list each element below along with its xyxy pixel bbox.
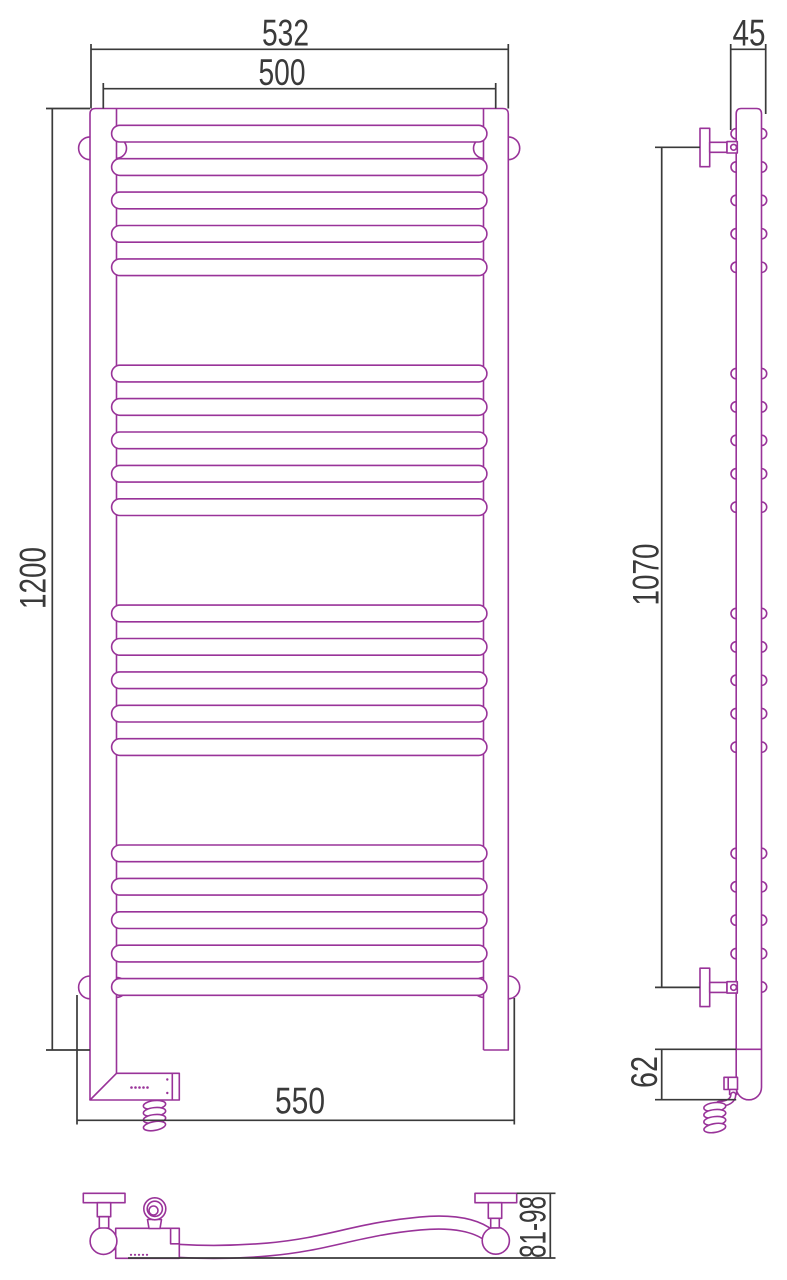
- dim-label-550: 550: [275, 1081, 325, 1122]
- power-cable-coil: [143, 1099, 167, 1132]
- dim-label-62: 62: [624, 1056, 665, 1088]
- dim-label-1070: 1070: [626, 544, 667, 606]
- top-post-right: [482, 1227, 509, 1254]
- bracket-arc-top-right-outer: [508, 137, 519, 160]
- top-view: 81-98: [83, 1193, 555, 1258]
- dim-label-532: 532: [262, 13, 309, 54]
- bracket-flange: [475, 1193, 517, 1202]
- bracket-arc-top-left-outer: [79, 137, 90, 160]
- rung: [112, 639, 487, 656]
- rung: [112, 259, 487, 276]
- bracket-joint: [491, 1218, 500, 1228]
- bracket-flange: [700, 128, 710, 166]
- rung: [112, 399, 487, 416]
- top-heating-box-body: [116, 1228, 180, 1258]
- bracket-arc-bottom-right-outer: [508, 976, 519, 999]
- rung: [112, 226, 487, 243]
- front-rungs: [112, 125, 487, 995]
- rung: [112, 945, 487, 962]
- rung: [112, 705, 487, 722]
- rung: [112, 192, 487, 209]
- bracket-stem: [488, 1203, 501, 1219]
- top-heating-box: [116, 1228, 180, 1258]
- bracket-joint: [99, 1217, 108, 1228]
- rung: [112, 159, 487, 176]
- heating-element-box: [90, 1073, 179, 1132]
- rung: [112, 912, 487, 929]
- dim-lines-62: [655, 1049, 736, 1099]
- rung: [112, 465, 487, 482]
- top-bracket-left: [83, 1193, 125, 1228]
- bracket-flange: [83, 1193, 125, 1202]
- power-cable-coil: [703, 1101, 726, 1134]
- side-cable-assembly: [703, 1077, 737, 1134]
- side-bracket-bottom: [700, 968, 737, 1006]
- rung: [112, 979, 487, 996]
- dim-label-500: 500: [259, 52, 306, 93]
- rung: [112, 605, 487, 622]
- rung: [112, 499, 487, 516]
- rung: [112, 125, 487, 142]
- dim-label-45: 45: [733, 13, 766, 54]
- side-view: 45 1070 62: [624, 13, 767, 1135]
- rung: [112, 845, 487, 862]
- top-cable-gland: [144, 1198, 166, 1229]
- bracket-arc-bottom-left-outer: [79, 976, 90, 999]
- technical-drawing: 532 500 1200 550: [0, 0, 787, 1280]
- top-post-left: [90, 1228, 117, 1255]
- rung: [112, 672, 487, 689]
- side-profile-bar: [736, 109, 761, 1100]
- rung: [112, 739, 487, 756]
- gland-stem: [148, 1220, 162, 1229]
- bracket-arm: [710, 982, 727, 992]
- bracket-flange: [700, 968, 710, 1006]
- cable-gland-box: [724, 1077, 738, 1089]
- dim-label-1200: 1200: [13, 547, 54, 609]
- bracket-arm: [710, 142, 727, 152]
- rung: [112, 432, 487, 449]
- rung: [112, 878, 487, 895]
- drawing-canvas: 532 500 1200 550: [0, 0, 787, 1280]
- rung: [112, 365, 487, 382]
- dim-label-81-98: 81-98: [513, 1196, 554, 1258]
- front-view: 532 500 1200 550: [13, 13, 520, 1133]
- bracket-stem: [97, 1203, 110, 1217]
